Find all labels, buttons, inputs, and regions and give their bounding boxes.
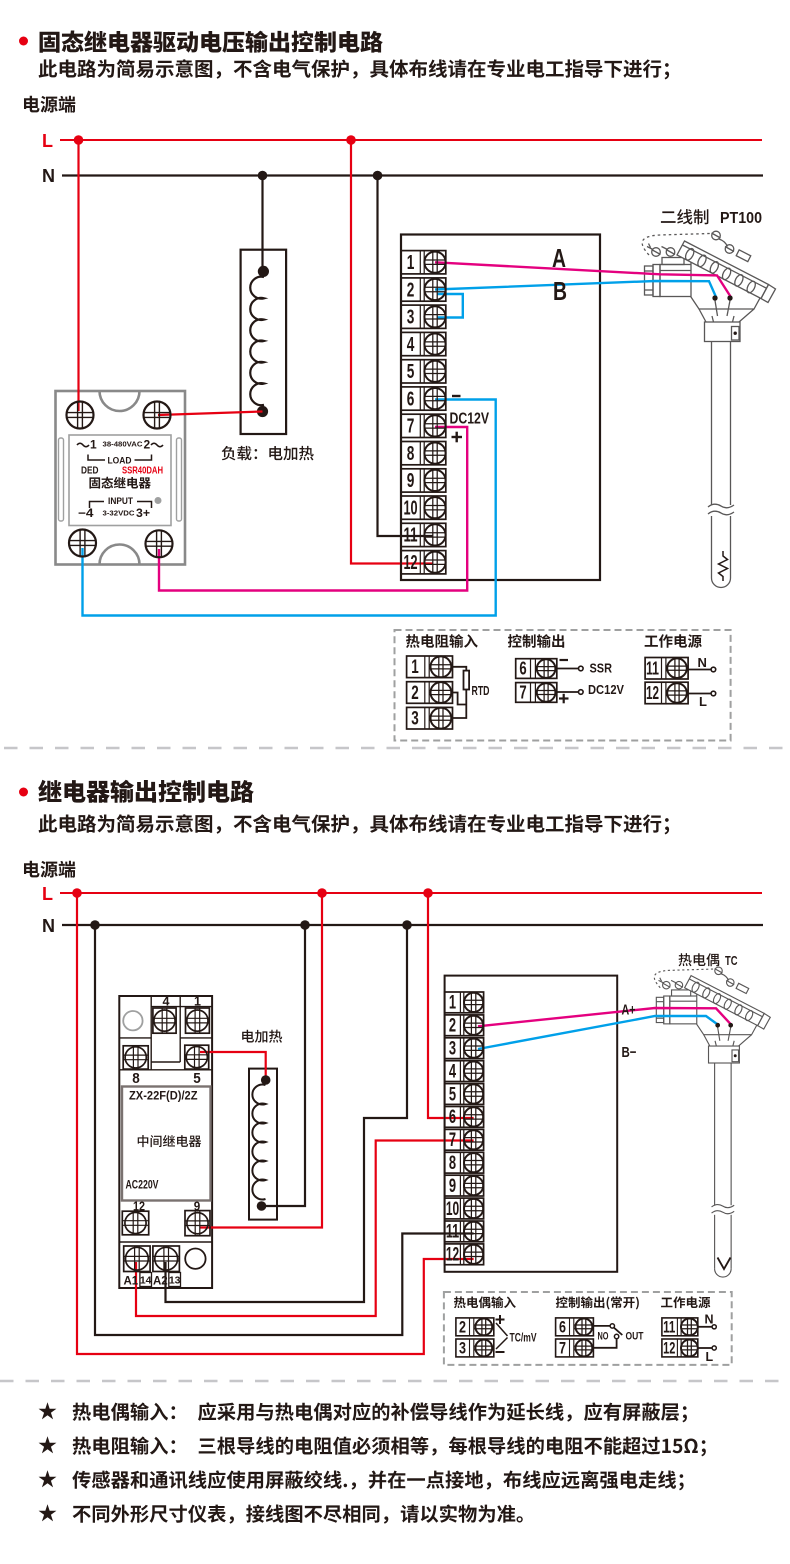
svg-text:4: 4 [449,1061,456,1082]
svg-text:6: 6 [449,1107,456,1128]
svg-text:14: 14 [140,1275,152,1287]
svg-text:AC220V: AC220V [126,1178,159,1192]
svg-text:11: 11 [446,1222,460,1243]
svg-text:INPUT: INPUT [108,496,133,507]
svg-text:6: 6 [407,387,415,410]
svg-text:11: 11 [663,1318,675,1336]
svg-text:PT100: PT100 [720,210,762,227]
svg-text:13: 13 [169,1275,181,1287]
svg-text:N: N [705,1313,714,1327]
svg-text:1: 1 [407,251,415,274]
svg-text:N: N [42,166,55,186]
svg-text:A: A [552,243,566,273]
svg-text:8: 8 [449,1153,456,1174]
svg-text:B−: B− [622,1044,637,1061]
svg-text:2: 2 [411,683,419,704]
svg-text:DC12V: DC12V [450,411,490,428]
svg-text:8: 8 [407,442,415,465]
svg-text:2: 2 [144,438,151,452]
svg-text:TC/mV: TC/mV [510,1333,537,1345]
svg-text:5: 5 [193,1070,201,1087]
svg-text:3: 3 [449,1039,456,1060]
svg-text:7: 7 [559,1339,566,1358]
svg-text:6: 6 [559,1318,566,1337]
svg-text:3-32VDC: 3-32VDC [103,509,136,518]
svg-text:8: 8 [132,1070,140,1087]
svg-text:9: 9 [407,469,415,492]
svg-text:L: L [42,884,53,904]
svg-text:N: N [42,916,55,936]
svg-text:12: 12 [403,551,417,574]
svg-text:SSR40DAH: SSR40DAH [122,466,163,477]
svg-text:B: B [553,276,567,306]
svg-text:NO: NO [598,1331,609,1343]
svg-text:10: 10 [403,496,417,519]
svg-text:RTD: RTD [472,684,490,698]
svg-text:5: 5 [449,1084,456,1105]
svg-text:A+: A+ [622,1002,636,1019]
svg-text:L: L [42,131,53,151]
svg-text:1: 1 [90,438,97,452]
svg-text:5: 5 [407,360,415,383]
svg-text:2: 2 [459,1318,466,1337]
svg-text:11: 11 [646,657,659,678]
svg-text:12: 12 [646,682,659,703]
svg-text:6: 6 [519,658,526,679]
svg-text:38-480VAC: 38-480VAC [103,440,144,449]
svg-text:ZX-22F(D)/2Z: ZX-22F(D)/2Z [129,1091,198,1103]
svg-text:A2: A2 [153,1276,168,1288]
svg-text:DC12V: DC12V [588,682,624,697]
svg-text:A1: A1 [124,1276,139,1288]
svg-text:2: 2 [449,1016,456,1037]
svg-text:2: 2 [407,278,415,301]
svg-text:7: 7 [407,415,415,438]
svg-text:4: 4 [163,995,170,1009]
svg-text:4: 4 [407,333,415,356]
svg-text:OUT: OUT [626,1331,644,1343]
svg-text:11: 11 [403,524,417,547]
svg-text:3+: 3+ [136,506,150,520]
svg-text:−4: −4 [78,506,94,520]
svg-text:12: 12 [663,1339,675,1357]
svg-text:DED: DED [81,466,99,477]
svg-text:1: 1 [194,995,201,1009]
svg-text:10: 10 [446,1199,459,1220]
svg-text:9: 9 [449,1176,456,1197]
svg-text:3: 3 [459,1339,466,1358]
svg-text:3: 3 [407,306,415,329]
svg-text:7: 7 [449,1130,456,1151]
svg-text:3: 3 [411,709,419,730]
svg-text:TC: TC [725,953,738,968]
svg-text:7: 7 [519,682,526,703]
svg-text:1: 1 [411,657,419,678]
svg-text:1: 1 [449,993,456,1014]
svg-text:L: L [706,1350,714,1364]
svg-text:SSR: SSR [590,661,613,676]
svg-text:12: 12 [446,1245,459,1266]
svg-text:N: N [698,655,707,670]
svg-text:L: L [699,694,707,709]
